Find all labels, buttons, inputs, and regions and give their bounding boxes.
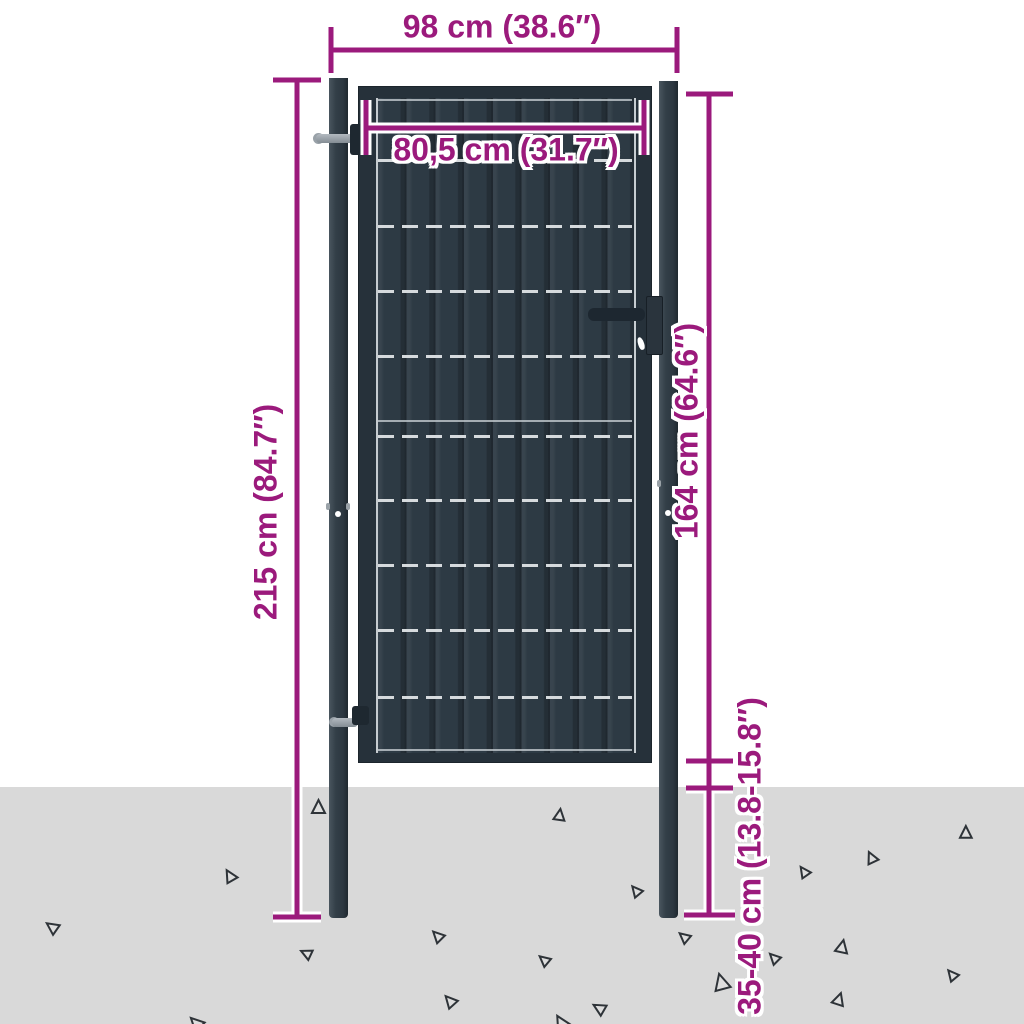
dim-gate-height-label: 164 cm (64.6″) — [669, 323, 706, 539]
dim-overall-width-text: 98 cm (38.6″) — [403, 9, 602, 45]
dim-gate-width-text: 80,5 cm (31.7″) — [393, 132, 618, 168]
dim-gate-height-text: 164 cm (64.6″) — [669, 323, 705, 539]
dim-overall-height-text: 215 cm (84.7″) — [248, 404, 284, 620]
dim-overall-height-label: 215 cm (84.7″) — [248, 404, 285, 620]
dim-gate-width-label: 80,5 cm (31.7″) — [393, 132, 618, 169]
dim-post-depth-text: 35-40 cm (13.8-15.8″) — [732, 697, 768, 1015]
product-dimension-diagram: 98 cm (38.6″) 80,5 cm (31.7″) 215 cm (84… — [0, 0, 1024, 1024]
dim-overall-width-label: 98 cm (38.6″) — [403, 9, 602, 46]
dim-post-depth-label: 35-40 cm (13.8-15.8″) — [732, 697, 769, 1015]
